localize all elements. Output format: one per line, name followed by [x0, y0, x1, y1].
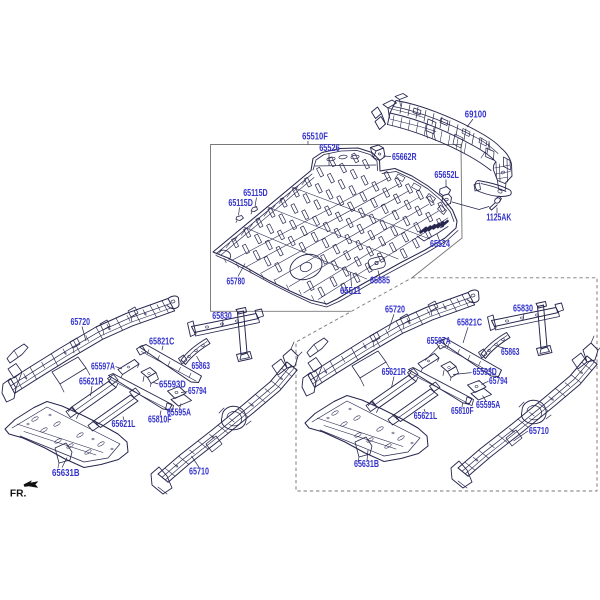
svg-text:65621L: 65621L [414, 411, 438, 422]
svg-text:65524: 65524 [430, 239, 450, 250]
svg-text:65863: 65863 [192, 361, 211, 372]
svg-text:65510F: 65510F [302, 131, 328, 142]
svg-text:65863: 65863 [501, 347, 520, 358]
svg-text:65621R: 65621R [382, 367, 407, 378]
svg-text:65780: 65780 [227, 276, 246, 287]
svg-text:65794: 65794 [188, 386, 207, 397]
svg-text:1125AK: 1125AK [486, 213, 511, 224]
svg-text:65593D: 65593D [159, 380, 186, 391]
svg-text:FR.: FR. [10, 488, 27, 499]
svg-text:65597A: 65597A [427, 336, 451, 347]
svg-text:65830: 65830 [513, 304, 533, 315]
svg-text:65621L: 65621L [112, 419, 136, 430]
svg-text:65885: 65885 [370, 276, 390, 287]
svg-text:69100: 69100 [465, 109, 487, 120]
svg-text:65631B: 65631B [52, 468, 80, 479]
svg-text:65821C: 65821C [149, 336, 175, 347]
svg-text:65631B: 65631B [354, 459, 379, 470]
svg-text:65595A: 65595A [476, 400, 501, 411]
svg-text:65621R: 65621R [79, 377, 104, 388]
svg-text:65720: 65720 [71, 317, 91, 328]
svg-text:65526: 65526 [319, 143, 340, 154]
svg-text:65710: 65710 [189, 467, 209, 478]
svg-text:65720: 65720 [385, 305, 405, 316]
svg-text:65597A: 65597A [91, 362, 115, 373]
svg-text:65115D: 65115D [228, 198, 253, 209]
svg-text:65652L: 65652L [434, 170, 459, 181]
svg-text:65821C: 65821C [457, 318, 482, 329]
svg-text:65511: 65511 [340, 286, 361, 297]
svg-text:65810F: 65810F [451, 406, 474, 417]
svg-text:65830: 65830 [212, 311, 232, 322]
svg-text:65810F: 65810F [148, 414, 172, 425]
svg-text:65794: 65794 [489, 376, 508, 387]
svg-text:65662R: 65662R [392, 152, 417, 163]
svg-text:65710: 65710 [529, 426, 549, 437]
